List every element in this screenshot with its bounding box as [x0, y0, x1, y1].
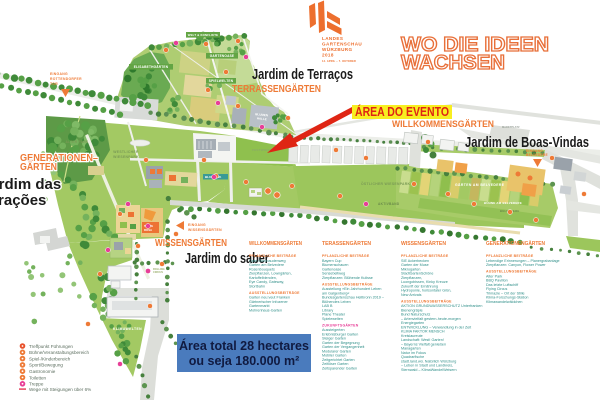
svg-text:BÜHNE AM BELVEDERE: BÜHNE AM BELVEDERE: [484, 200, 522, 205]
svg-text:WACHSEN: WACHSEN: [401, 52, 505, 74]
svg-text:AUSSTELLUNGSBEITRÄGE: AUSSTELLUNGSBEITRÄGE: [401, 299, 452, 303]
svg-text:AUSSTELLUNGSBEITRÄGE: AUSSTELLUNGSBEITRÄGE: [249, 291, 300, 295]
svg-text:Sport/Bewegung: Sport/Bewegung: [29, 363, 63, 368]
svg-text:Jardim de Boas-Vindas: Jardim de Boas-Vindas: [465, 134, 589, 151]
svg-text:TERRASSENGÄRTEN: TERRASSENGÄRTEN: [232, 82, 321, 95]
svg-text:Gerações: Gerações: [0, 192, 46, 209]
svg-text:SPIELWELTEN: SPIELWELTEN: [209, 79, 234, 83]
svg-text:12. APRIL – 7. OKTOBER: 12. APRIL – 7. OKTOBER: [322, 60, 356, 63]
svg-text:GÄRTEN AM BELVEDERE: GÄRTEN AM BELVEDERE: [455, 183, 505, 187]
svg-text:ELISABETHGÄRTEN: ELISABETHGÄRTEN: [134, 65, 169, 69]
svg-text:Toiletten: Toiletten: [29, 375, 47, 380]
svg-text:ou seja 180.000 m²: ou seja 180.000 m²: [189, 354, 299, 368]
svg-text:ZUKUNFTSGÄRTEN: ZUKUNFTSGÄRTEN: [322, 323, 359, 327]
svg-text:Klimawandelwäldchen: Klimawandelwäldchen: [486, 300, 523, 304]
svg-text:New Arrivals: New Arrivals: [401, 293, 422, 297]
svg-text:WISSENSGÄRTEN: WISSENSGÄRTEN: [155, 236, 227, 249]
svg-text:WELT & KONFLIKTE: WELT & KONFLIKTE: [188, 33, 219, 37]
svg-text:KLIMAWELTEN: KLIMAWELTEN: [113, 327, 142, 331]
svg-text:BELVEDERE: BELVEDERE: [526, 153, 548, 157]
svg-text:Zierpflanzen: Canyon, Flower P: Zierpflanzen: Canyon, Flower Power: [486, 263, 546, 267]
svg-text:TERASSENGÄRTEN: TERASSENGÄRTEN: [322, 240, 371, 247]
svg-text:WIESENPARK: WIESENPARK: [113, 155, 139, 159]
svg-text:Spielewelten: Spielewelten: [322, 317, 343, 321]
svg-text:2018: 2018: [322, 53, 334, 58]
svg-text:AKTIVBAND: AKTIVBAND: [378, 202, 400, 206]
svg-text:WILLKOMMENSGÄRTEN: WILLKOMMENSGÄRTEN: [249, 240, 302, 247]
svg-text:GARTENOASE: GARTENOASE: [210, 54, 235, 58]
svg-text:PFLANZLICHE BEITRÄGE: PFLANZLICHE BEITRÄGE: [322, 254, 370, 258]
svg-text:AUSSTELLUNGSBEITRÄGE: AUSSTELLUNGSBEITRÄGE: [322, 282, 373, 286]
svg-text:Zeitsparender Garten: Zeitsparender Garten: [322, 366, 357, 370]
svg-text:TOR: TOR: [50, 82, 58, 86]
svg-text:GARTENSCHAU: GARTENSCHAU: [322, 42, 362, 47]
svg-text:Jardim das: Jardim das: [0, 176, 61, 193]
svg-text:Jardim de Terraços: Jardim de Terraços: [252, 66, 353, 83]
svg-text:Spiel-/Kinderbereich: Spiel-/Kinderbereich: [29, 356, 71, 361]
svg-text:ÖSTLICHER WIESENPARK: ÖSTLICHER WIESENPARK: [361, 181, 411, 186]
svg-text:Mohrenhaus-Garten: Mohrenhaus-Garten: [249, 308, 282, 312]
svg-text:GÄRTEN: GÄRTEN: [20, 160, 57, 173]
svg-text:AUSSTELLUNGSBEITRÄGE: AUSSTELLUNGSBEITRÄGE: [486, 270, 537, 274]
svg-text:PFLANZLICHE BEITRÄGE: PFLANZLICHE BEITRÄGE: [249, 254, 297, 258]
svg-text:Treppe: Treppe: [29, 382, 44, 387]
svg-text:ALTER PARK: ALTER PARK: [65, 140, 88, 144]
svg-text:EINGANG: EINGANG: [188, 223, 206, 227]
svg-text:Wege mit Steigungen über 6%: Wege mit Steigungen über 6%: [29, 387, 91, 392]
svg-text:EINGANG: EINGANG: [50, 72, 68, 76]
svg-text:LANDES: LANDES: [322, 36, 343, 41]
svg-text:Stortbahn: Stortbahn: [249, 284, 265, 288]
svg-text:Área total 28 hectares: Área total 28 hectares: [179, 338, 309, 353]
svg-text:Gastronomie: Gastronomie: [29, 369, 56, 374]
svg-text:PFLANZLICHE BEITRÄGE: PFLANZLICHE BEITRÄGE: [401, 254, 449, 258]
svg-text:MARKTPLATZ: MARKTPLATZ: [502, 125, 520, 129]
svg-text:Bühne/Veranstaltungsbereich: Bühne/Veranstaltungsbereich: [29, 350, 89, 355]
svg-text:WISSENSGÄRTEN: WISSENSGÄRTEN: [188, 228, 222, 232]
svg-text:WESTLICHER: WESTLICHER: [113, 150, 139, 154]
svg-text:WISSENSGÄRTEN: WISSENSGÄRTEN: [401, 240, 446, 247]
svg-text:ROTTENDORFER: ROTTENDORFER: [50, 77, 82, 81]
svg-text:Treffpunkt Führungen: Treffpunkt Führungen: [29, 344, 73, 349]
svg-text:ÁREA DO EVENTO: ÁREA DO EVENTO: [355, 104, 449, 119]
svg-text:PFLANZLICHE BEITRÄGE: PFLANZLICHE BEITRÄGE: [486, 254, 534, 258]
svg-text:WILLKOMMENSGÄRTEN: WILLKOMMENSGÄRTEN: [392, 119, 494, 129]
svg-text:Sternwald – KlimaWandelWeisern: Sternwald – KlimaWandelWeisern: [401, 368, 457, 372]
svg-text:CIRCUS: CIRCUS: [153, 270, 163, 274]
svg-text:GENERATIONENGÄRTEN: GENERATIONENGÄRTEN: [486, 240, 545, 247]
svg-text:WÜRZBURG: WÜRZBURG: [322, 46, 353, 52]
svg-text:Zierpflanzen: Blühende Kulisse: Zierpflanzen: Blühende Kulisse: [322, 276, 373, 280]
